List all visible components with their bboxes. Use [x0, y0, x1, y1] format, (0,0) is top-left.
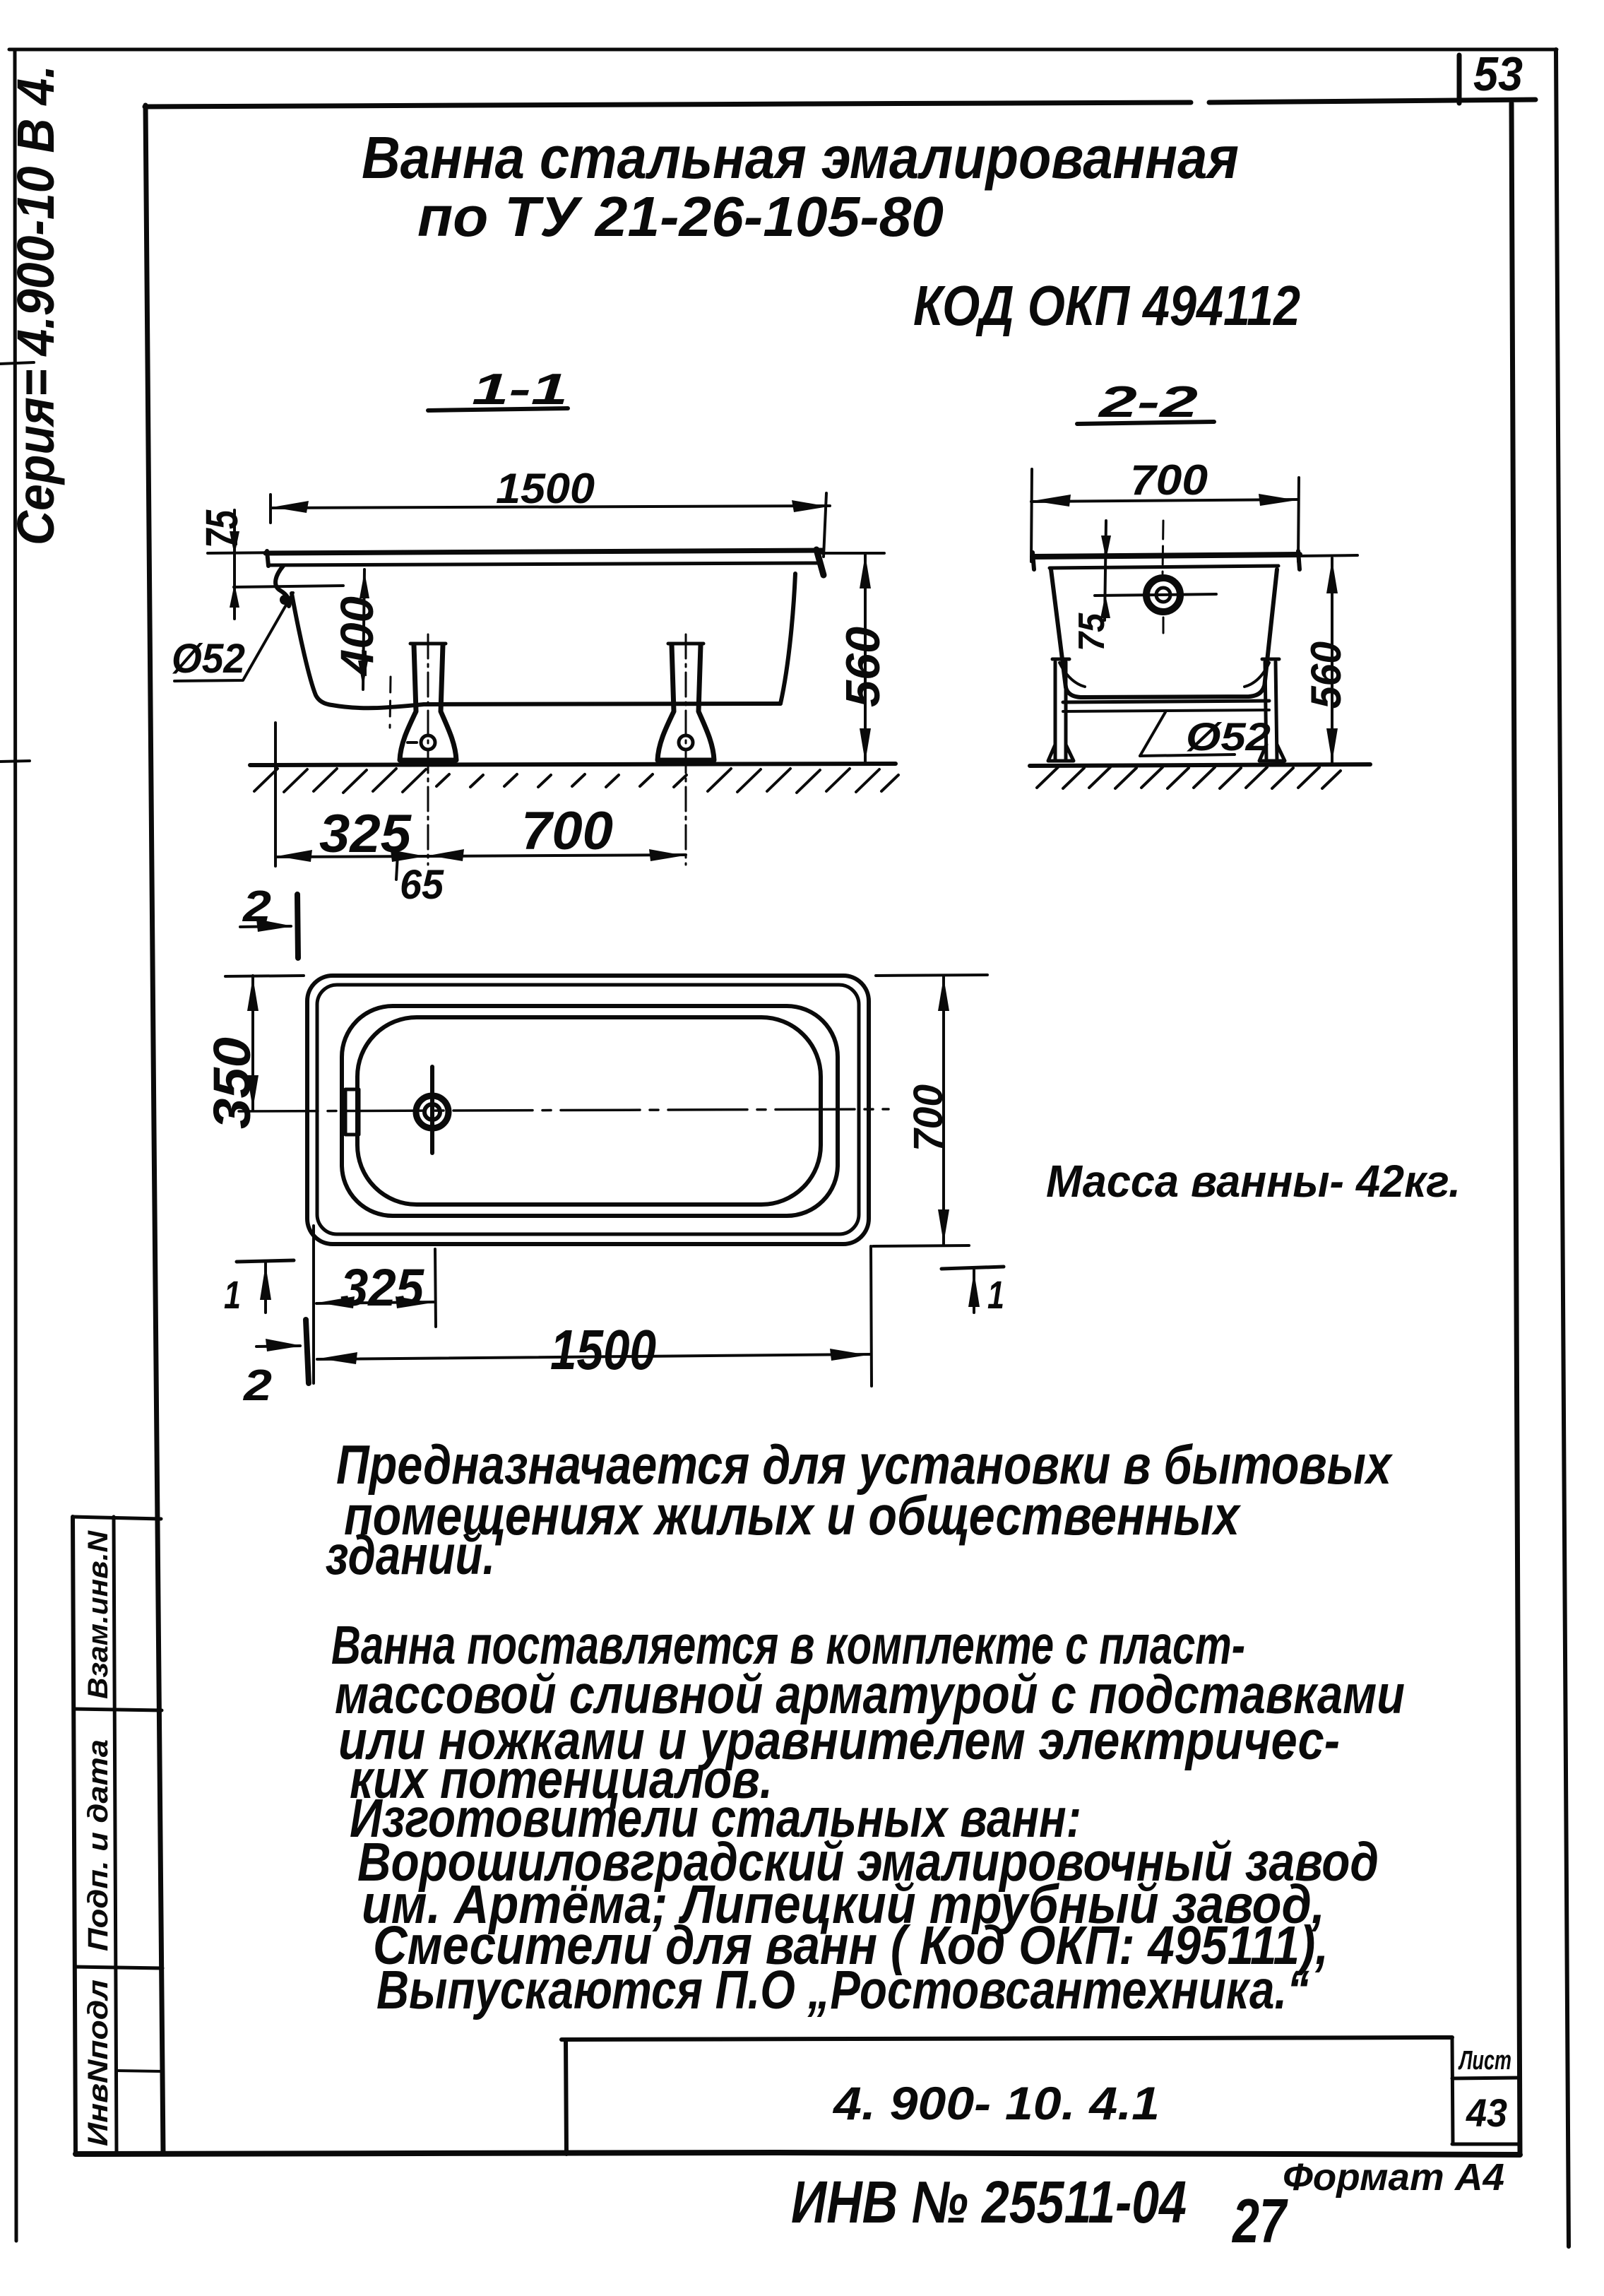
svg-text:Ванна стальная эмалированная: Ванна стальная эмалированная [362, 124, 1239, 191]
svg-text:700: 700 [521, 801, 613, 861]
svg-text:560: 560 [836, 627, 890, 707]
svg-text:75: 75 [196, 509, 247, 548]
svg-text:2: 2 [243, 1361, 272, 1410]
svg-text:400: 400 [331, 596, 383, 677]
svg-text:700: 700 [1130, 456, 1208, 504]
svg-text:1500: 1500 [496, 465, 595, 512]
svg-text:ИнвNподл: ИнвNподл [83, 1980, 114, 2146]
svg-text:1: 1 [224, 1272, 241, 1317]
svg-text:ИНВ № 25511-04: ИНВ № 25511-04 [791, 2169, 1187, 2235]
svg-text:27: 27 [1231, 2186, 1288, 2256]
svg-text:Выпускаются П.О „Ростовсантех: Выпускаются П.О „Ростовсантехника.“ [376, 1960, 1309, 2020]
svg-text:Серия= 4.900-10 В 4.: Серия= 4.900-10 В 4. [6, 65, 65, 545]
svg-text:Формат А4: Формат А4 [1283, 2156, 1504, 2199]
svg-text:Масса ванны- 42кг.: Масса ванны- 42кг. [1046, 1156, 1461, 1207]
svg-text:75: 75 [1071, 613, 1112, 651]
svg-text:по ТУ 21-26-105-80: по ТУ 21-26-105-80 [417, 185, 944, 248]
svg-text:Ø52: Ø52 [1186, 714, 1271, 759]
svg-text:Ø52: Ø52 [172, 636, 245, 682]
svg-text:560: 560 [1302, 641, 1350, 709]
svg-text:Взам.инв.N: Взам.инв.N [83, 1530, 114, 1699]
svg-text:1: 1 [987, 1272, 1004, 1317]
svg-text:Лист: Лист [1458, 2046, 1511, 2076]
svg-text:2-2: 2-2 [1098, 378, 1198, 427]
svg-text:зданий.: зданий. [326, 1524, 495, 1586]
svg-text:Подп. и дата: Подп. и дата [83, 1739, 114, 1951]
svg-text:53: 53 [1473, 47, 1523, 101]
svg-text:43: 43 [1466, 2090, 1507, 2135]
svg-text:КОД ОКП 494112: КОД ОКП 494112 [913, 274, 1300, 337]
svg-text:65: 65 [400, 862, 444, 908]
svg-text:4. 900- 10. 4.1: 4. 900- 10. 4.1 [832, 2077, 1160, 2129]
svg-text:1500: 1500 [550, 1318, 656, 1381]
